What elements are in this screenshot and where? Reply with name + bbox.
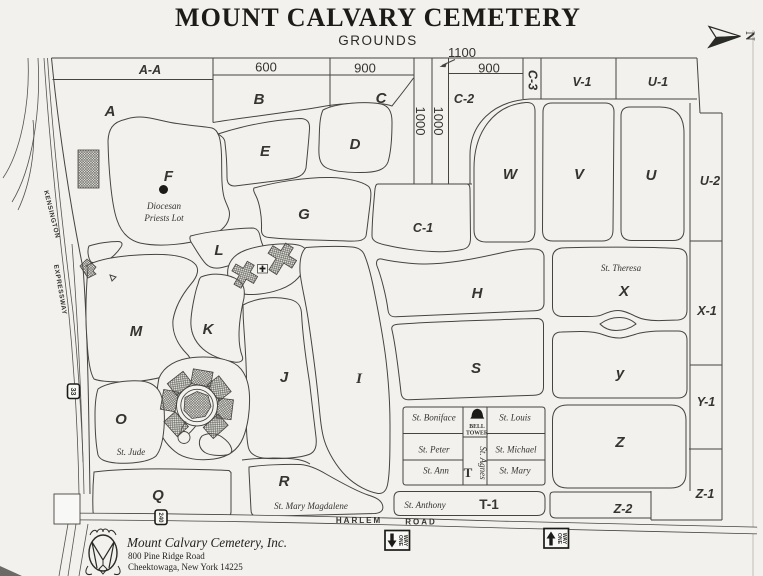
svg-text:Z: Z (614, 434, 625, 451)
svg-text:K: K (203, 321, 215, 338)
svg-text:U-1: U-1 (648, 75, 668, 89)
svg-text:Priests Lot: Priests Lot (143, 213, 184, 223)
svg-text:T-1: T-1 (479, 497, 499, 512)
svg-text:Y-1: Y-1 (697, 395, 716, 409)
svg-text:Q: Q (152, 487, 164, 504)
svg-text:X-1: X-1 (696, 304, 717, 318)
svg-text:St. Agnes: St. Agnes (478, 446, 488, 480)
svg-text:U: U (646, 167, 658, 184)
svg-text:A-A: A-A (138, 63, 161, 77)
svg-text:O: O (115, 411, 127, 428)
svg-text:900: 900 (478, 61, 500, 76)
svg-text:800 Pine Ridge Road: 800 Pine Ridge Road (128, 551, 205, 561)
svg-text:St. Mary Magdalene: St. Mary Magdalene (274, 501, 348, 511)
svg-text:T: T (464, 465, 473, 480)
svg-text:R: R (279, 473, 290, 490)
svg-text:St. Ann: St. Ann (423, 466, 449, 476)
svg-text:G: G (298, 206, 310, 223)
svg-text:W: W (503, 166, 519, 183)
svg-text:J: J (280, 369, 289, 386)
svg-text:C: C (376, 90, 388, 107)
svg-text:A: A (104, 103, 116, 120)
svg-text:MOUNT CALVARY CEMETERY: MOUNT CALVARY CEMETERY (175, 3, 581, 32)
svg-text:240: 240 (157, 512, 163, 523)
svg-text:St. Louis: St. Louis (499, 413, 531, 423)
svg-text:1000: 1000 (431, 107, 446, 136)
svg-text:1100: 1100 (448, 45, 476, 60)
svg-text:WAY: WAY (561, 533, 567, 545)
svg-text:St. Theresa: St. Theresa (601, 263, 642, 273)
svg-text:V-1: V-1 (573, 75, 592, 89)
svg-text:U-2: U-2 (700, 174, 720, 188)
svg-text:X: X (618, 283, 630, 300)
svg-text:Z-1: Z-1 (695, 487, 715, 501)
svg-text:Mount Calvary Cemetery, Inc.: Mount Calvary Cemetery, Inc. (126, 535, 287, 550)
svg-text:ONE: ONE (397, 535, 403, 547)
svg-text:WAY: WAY (402, 535, 408, 547)
svg-text:S: S (471, 360, 481, 377)
svg-text:M: M (130, 323, 143, 340)
svg-text:ROAD: ROAD (405, 518, 437, 527)
svg-text:St. Anthony: St. Anthony (404, 500, 445, 510)
svg-text:St. Peter: St. Peter (419, 445, 450, 455)
svg-text:St. Jude: St. Jude (117, 447, 146, 457)
svg-text:1000: 1000 (413, 107, 428, 136)
svg-text:St. Boniface: St. Boniface (412, 413, 456, 423)
svg-text:GROUNDS: GROUNDS (338, 33, 418, 48)
svg-text:Z-2: Z-2 (613, 502, 633, 516)
svg-text:C-1: C-1 (413, 221, 433, 235)
svg-text:St. Mary: St. Mary (500, 466, 531, 476)
svg-text:Cheektowaga, New York 14225: Cheektowaga, New York 14225 (128, 562, 243, 572)
svg-text:33: 33 (69, 388, 76, 396)
svg-text:D: D (350, 136, 361, 153)
svg-text:C-2: C-2 (454, 92, 474, 106)
svg-text:E: E (260, 143, 271, 160)
svg-text:BELL: BELL (469, 424, 485, 430)
svg-text:Diocesan: Diocesan (146, 201, 181, 211)
svg-text:I: I (355, 371, 363, 387)
svg-text:F: F (164, 168, 174, 185)
svg-text:y: y (615, 365, 625, 382)
svg-text:C-3: C-3 (526, 70, 540, 90)
svg-text:TOWER: TOWER (466, 430, 489, 436)
svg-text:B: B (254, 91, 265, 108)
svg-text:H: H (472, 285, 484, 302)
svg-text:N: N (743, 31, 758, 41)
svg-text:600: 600 (255, 60, 277, 75)
svg-text:St. Michael: St. Michael (496, 445, 537, 455)
svg-text:HARLEM: HARLEM (336, 516, 382, 525)
svg-text:ONE: ONE (556, 533, 562, 545)
svg-text:L: L (214, 242, 223, 259)
svg-text:900: 900 (354, 61, 376, 76)
